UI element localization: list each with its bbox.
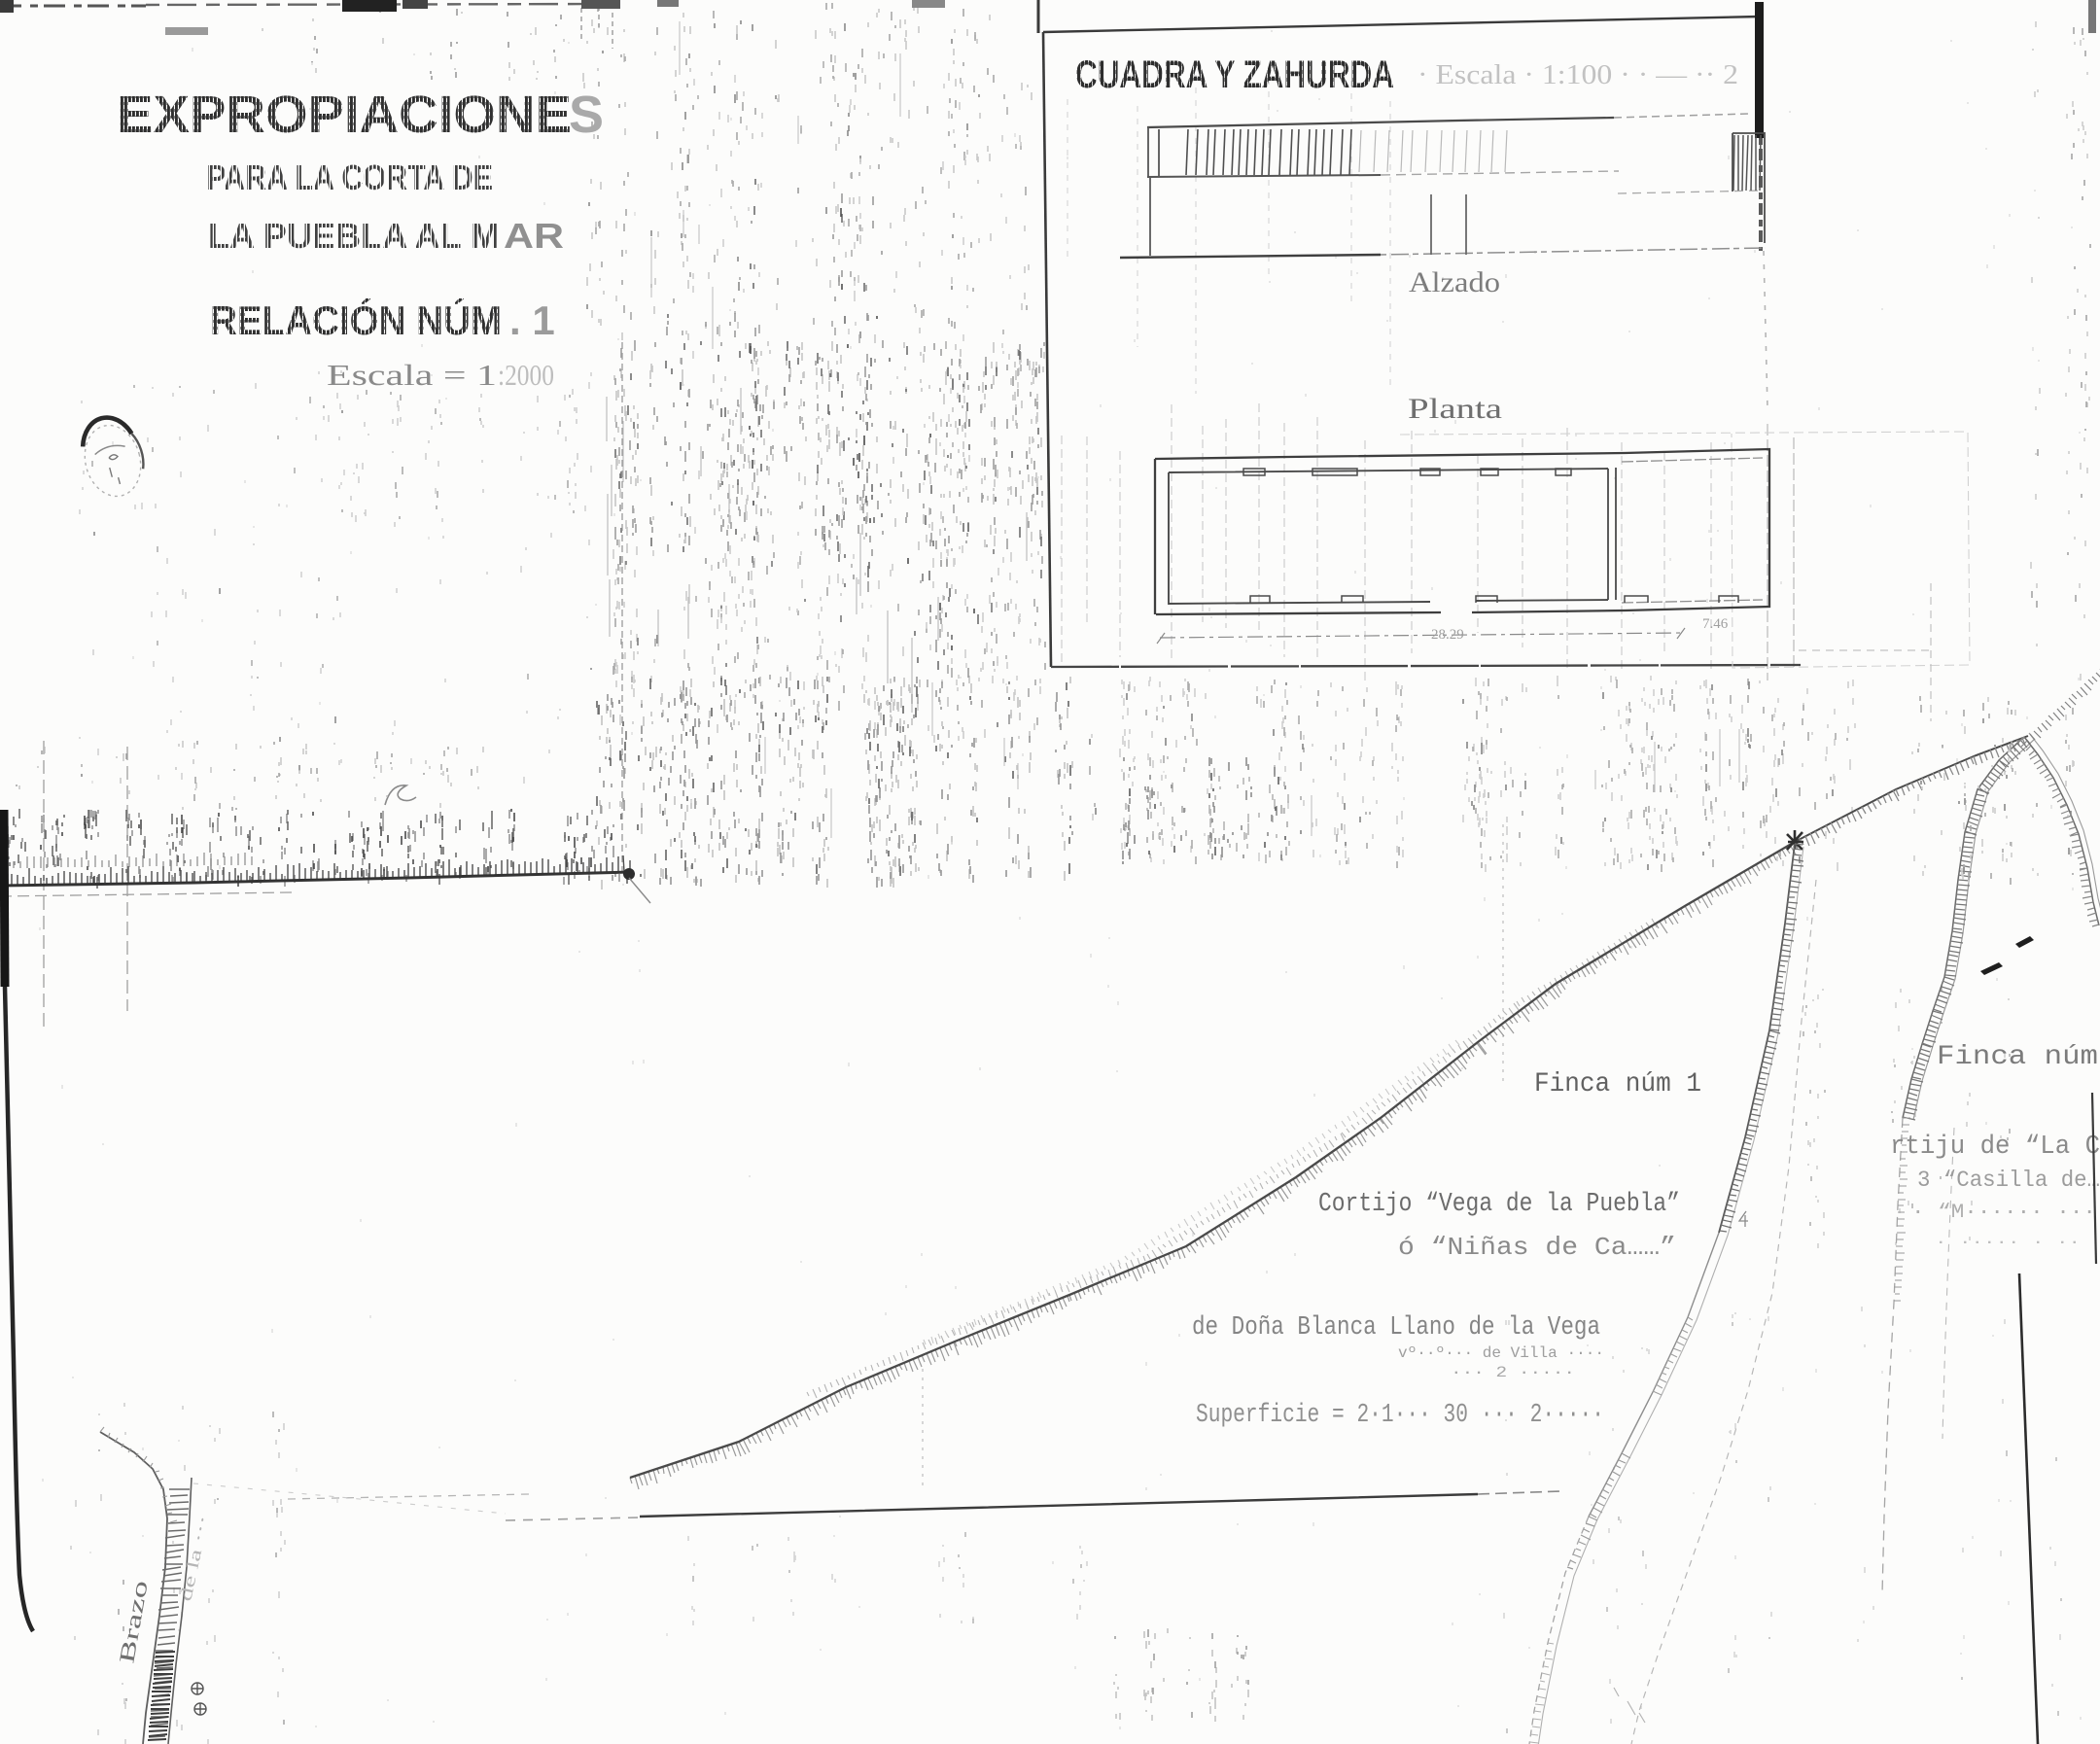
svg-text:· “M······ ···: · “M······ ···	[1911, 1202, 2096, 1224]
svg-text:EXPROPIACIONE: EXPROPIACIONE	[117, 86, 572, 144]
svg-text:rtiju de “La C: rtiju de “La C	[1890, 1133, 2100, 1162]
svg-text:de Doña Blanca Llano de la Veg: de Doña Blanca Llano de la Vega	[1192, 1313, 1600, 1343]
svg-text:CUADRA Y ZAHURDA: CUADRA Y ZAHURDA	[1075, 53, 1394, 96]
svg-text:Superficie = 2·1··· 30 ··· 2··: Superficie = 2·1··· 30 ··· 2·····	[1196, 1401, 1604, 1430]
svg-text:LA PUEBLA AL M: LA PUEBLA AL M	[208, 216, 500, 256]
svg-text:ó “Niñas de Ca……”: ó “Niñas de Ca……”	[1398, 1233, 1676, 1262]
svg-text:PARA LA CORTA DE: PARA LA CORTA DE	[206, 157, 493, 197]
svg-text:7.46: 7.46	[1702, 616, 1729, 632]
svg-text:· ····· · ··: · ····· · ··	[1935, 1234, 2081, 1251]
svg-text:Finca núm 1: Finca núm 1	[1534, 1069, 1701, 1099]
svg-text:Cortijo “Vega de la Puebla”: Cortijo “Vega de la Puebla”	[1318, 1190, 1680, 1219]
svg-text::2000: :2000	[498, 358, 554, 392]
svg-text:S: S	[569, 86, 604, 144]
svg-text:28.29: 28.29	[1431, 627, 1464, 643]
svg-text:Escala = 1: Escala = 1	[327, 358, 497, 392]
svg-text:. 1: . 1	[509, 297, 555, 343]
svg-text:3 “Casilla de…: 3 “Casilla de…	[1917, 1168, 2100, 1193]
svg-text:Alzado: Alzado	[1409, 266, 1500, 298]
svg-text:AR: AR	[504, 216, 564, 256]
svg-text:RELACIÓN NÚM: RELACIÓN NÚM	[210, 296, 502, 343]
svg-text:Planta: Planta	[1408, 393, 1502, 425]
svg-text:vº··º··· de Villa ····: vº··º··· de Villa ····	[1398, 1344, 1604, 1362]
svg-text:Finca núm: Finca núm	[1937, 1042, 2098, 1072]
svg-text:· Escala · 1:100 · · — ·· 2: · Escala · 1:100 · · — ·· 2	[1417, 59, 1738, 90]
svg-text:··· 2 ·····: ··· 2 ·····	[1451, 1364, 1575, 1381]
